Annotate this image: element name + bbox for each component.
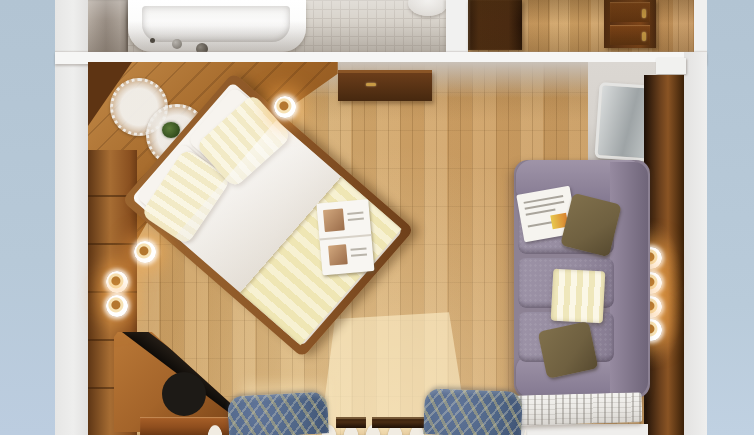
wall-lamp [106, 271, 128, 293]
bathroom-shading [88, 0, 448, 52]
magazine-photo [323, 208, 345, 232]
magazine-text-line [347, 212, 363, 215]
hallway-right-wall [694, 0, 707, 52]
sideboard-handle [366, 83, 376, 86]
outer-wall-right [684, 52, 707, 435]
tv-stand-base [162, 372, 206, 416]
magazine-text-line [351, 253, 367, 256]
armchair-left [227, 391, 329, 435]
striped-blanket [551, 269, 606, 324]
open-magazine [316, 199, 374, 275]
lamp-glow-on-wall [644, 220, 684, 370]
sofa-backrest [610, 162, 648, 396]
magazine-text-line [350, 247, 366, 250]
canvas-margin-right [706, 0, 754, 435]
floorplan-render [0, 0, 754, 435]
magazine-text-line [348, 218, 364, 221]
window-frame [336, 417, 366, 428]
wall-lamp [274, 96, 296, 118]
dark-sideboard [338, 70, 432, 101]
wall-lamp [134, 241, 156, 263]
armchair-right [423, 388, 523, 435]
outer-wall-left [55, 0, 88, 435]
canvas-margin-left [0, 0, 55, 435]
magazine-spine [319, 234, 371, 241]
magazine-photo [328, 244, 348, 265]
radiator [506, 392, 643, 426]
hallway-shading [468, 0, 694, 52]
wall-shelf-box [656, 58, 686, 74]
sofa [514, 160, 650, 400]
wall-lamp [106, 295, 128, 317]
bathroom-divider-wall [446, 0, 468, 52]
